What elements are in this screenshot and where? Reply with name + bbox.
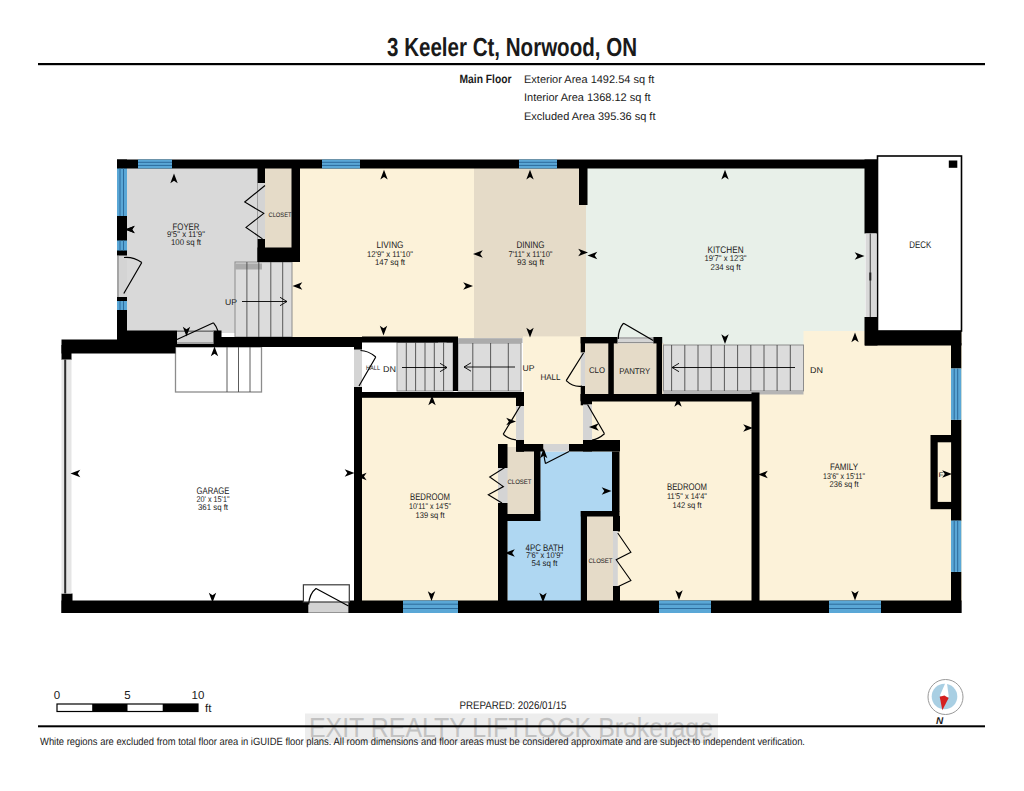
svg-text:UP: UP [225, 297, 237, 307]
svg-text:139 sq ft: 139 sq ft [416, 510, 446, 520]
svg-text:CLOSET: CLOSET [589, 558, 613, 565]
svg-text:361 sq ft: 361 sq ft [198, 502, 229, 512]
svg-text:0: 0 [54, 690, 60, 702]
svg-text:54 sq ft: 54 sq ft [532, 558, 559, 568]
svg-text:236 sq ft: 236 sq ft [830, 479, 860, 489]
svg-text:N: N [936, 716, 944, 727]
svg-text:CLO: CLO [589, 365, 605, 375]
svg-text:DN: DN [383, 364, 396, 374]
svg-text:100 sq ft: 100 sq ft [171, 237, 202, 247]
svg-text:PREPARED: 2026/01/15: PREPARED: 2026/01/15 [460, 700, 567, 712]
svg-text:HALL: HALL [541, 372, 561, 382]
svg-text:CLOSET: CLOSET [508, 479, 532, 486]
svg-text:5: 5 [124, 690, 130, 702]
svg-text:HALL: HALL [366, 365, 380, 372]
svg-text:147 sq ft: 147 sq ft [375, 257, 406, 267]
svg-text:White regions are excluded fro: White regions are excluded from total fl… [40, 736, 805, 748]
svg-text:142 sq ft: 142 sq ft [673, 500, 703, 510]
svg-text:Excluded Area 395.36 sq ft: Excluded Area 395.36 sq ft [524, 111, 655, 123]
svg-text:Interior Area 1368.12 sq ft: Interior Area 1368.12 sq ft [524, 92, 651, 104]
svg-text:DN: DN [810, 365, 823, 375]
svg-text:DECK: DECK [909, 240, 931, 251]
svg-text:Exterior Area 1492.54 sq ft: Exterior Area 1492.54 sq ft [524, 74, 654, 86]
svg-text:ft: ft [205, 703, 212, 715]
svg-text:Main Floor: Main Floor [460, 72, 512, 86]
svg-text:3 Keeler Ct, Norwood, ON: 3 Keeler Ct, Norwood, ON [387, 32, 637, 62]
svg-text:93 sq ft: 93 sq ft [517, 257, 545, 267]
svg-text:PANTRY: PANTRY [619, 366, 650, 376]
svg-text:234 sq ft: 234 sq ft [711, 262, 742, 272]
svg-text:10: 10 [192, 690, 205, 702]
svg-text:UP: UP [523, 363, 535, 373]
svg-text:CLOSET: CLOSET [269, 212, 292, 219]
